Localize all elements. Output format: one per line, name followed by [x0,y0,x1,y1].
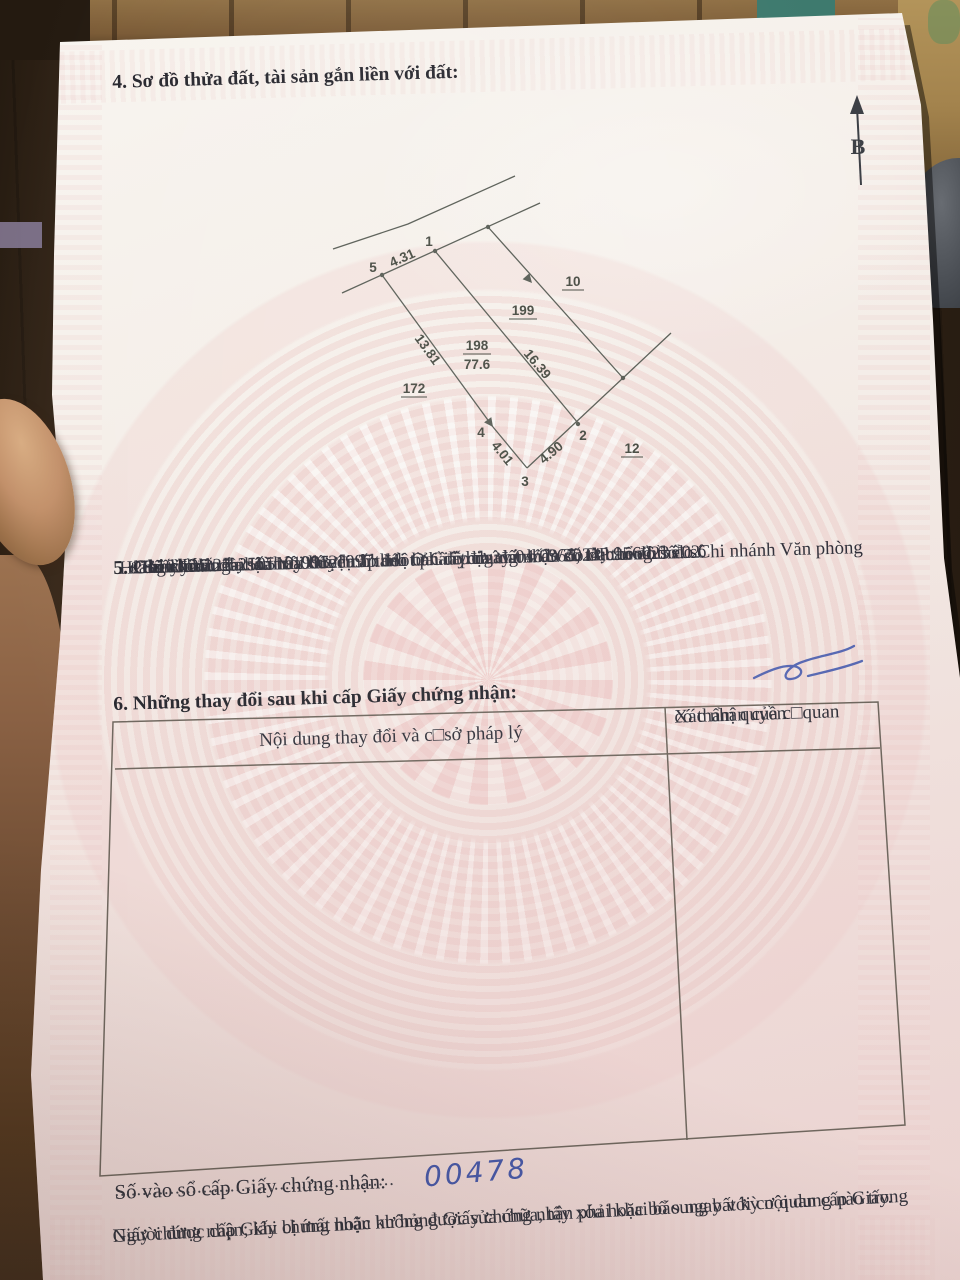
vertex-dot-east [621,376,625,380]
vertex-label-1: 1 [425,234,433,249]
table-header-separator [115,748,880,769]
parcel-number: 198 [466,338,489,353]
adjacent-parcel-12: 12 [624,441,639,456]
north-label: B [851,134,866,159]
photo-scene: 4. Sơ đồ thửa đất, tài sản gắn liền với … [0,0,960,1280]
parcel-area: 77.6 [464,357,491,372]
junction-dot [486,225,490,229]
table-outer-border [100,702,905,1176]
cabinet-green-label [928,0,960,44]
edge-length-16-39: 16.39 [521,346,554,382]
vertex-label-3: 3 [521,474,529,489]
adjacent-parcel-10: 10 [565,274,580,289]
vertex-label-5: 5 [369,260,377,275]
edge-length-13-81: 13.81 [412,331,444,368]
vertex-dot-2 [576,422,580,426]
north-arrow-icon: B [835,93,885,198]
arrowhead-4 [484,417,493,427]
adjacent-parcel-199: 199 [512,303,535,318]
boundary-5-1 [342,203,540,293]
plot-diagram: 1 5 2 3 4 4.31 13.81 4.01 4.90 16.39 198… [300,160,700,500]
boundary-stub [623,333,671,378]
changes-table [85,690,925,1190]
signature-scribble [750,638,870,698]
edge-length-4-31: 4.31 [387,245,418,270]
road-line [333,176,515,249]
vertex-dot-5 [380,273,384,277]
adjacent-parcel-172: 172 [403,381,426,396]
vertex-dot-1 [433,249,437,253]
purple-item [0,222,42,248]
edge-length-4-90: 4.90 [536,438,566,466]
certificate-page: 4. Sơ đồ thửa đất, tài sản gắn liền với … [0,0,960,1280]
edge-length-4-01: 4.01 [488,438,517,468]
vertex-label-2: 2 [579,428,587,443]
vertex-label-4: 4 [477,425,485,440]
boundary-199-10 [488,227,623,378]
edge-1-2 [435,251,578,423]
table-column-divider [665,707,687,1140]
